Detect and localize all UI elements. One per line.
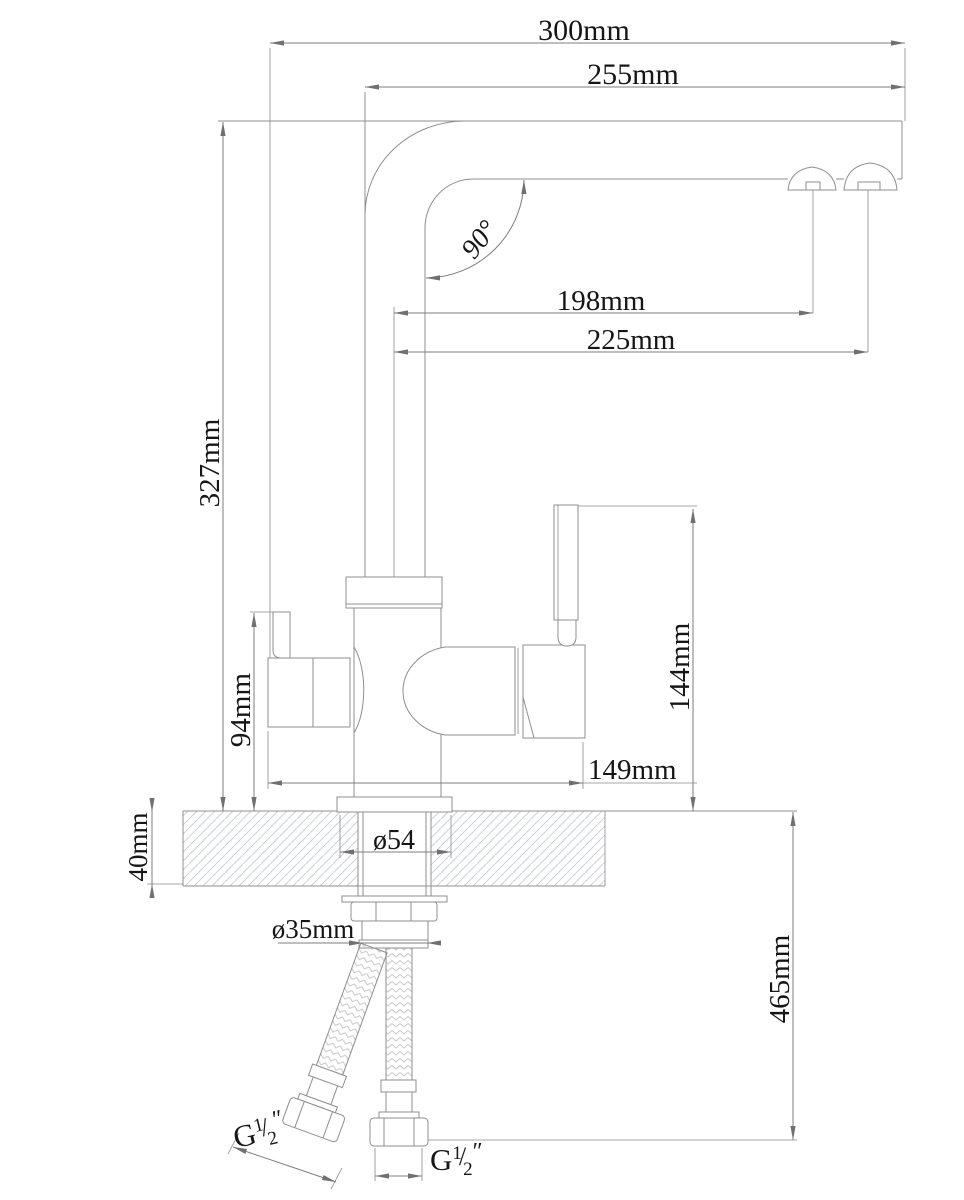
right-handle-neck: [558, 620, 576, 646]
right-handle-housing: [523, 645, 585, 738]
thread-right-inch: ″: [473, 1139, 483, 1165]
label-149mm: 149mm: [588, 754, 677, 786]
label-94mm: 94mm: [225, 673, 257, 748]
label-465mm: 465mm: [764, 934, 796, 1023]
label-thread-left: G1/2″: [229, 1105, 290, 1158]
label-dia35: ø35mm: [272, 914, 355, 944]
right-hose-tube: [386, 1092, 412, 1112]
mounting-nut: [351, 902, 437, 921]
aerator-far-outlet: [858, 182, 880, 190]
countertop-section: [183, 811, 797, 886]
countertop-hatch-right: [431, 811, 605, 886]
faucet-technical-drawing: 300mm 255mm 198mm 225mm 90° 327mm 94mm 1…: [0, 0, 964, 1200]
body-collar: [346, 577, 442, 608]
mounting-washer: [342, 896, 447, 902]
ext-line-thread-left-b: [331, 1168, 342, 1189]
label-thread-right: G1/2″: [430, 1139, 483, 1180]
label-dia54: ø54: [373, 825, 415, 856]
dimension-labels: 300mm 255mm 198mm 225mm 90° 327mm 94mm 1…: [123, 14, 796, 1180]
countertop-hatch-left: [183, 811, 358, 886]
label-327mm: 327mm: [194, 418, 226, 507]
aerator-near-outlet: [806, 182, 820, 190]
right-hose-nut: [370, 1118, 428, 1146]
left-handle-housing: [268, 658, 350, 727]
thread-right-sub: 2: [463, 1159, 473, 1180]
label-300mm: 300mm: [538, 14, 630, 47]
right-hose-washer: [379, 1112, 419, 1118]
label-255mm: 255mm: [587, 58, 679, 91]
label-40mm: 40mm: [123, 812, 153, 881]
supply-hoses: [282, 939, 428, 1146]
label-90deg: 90°: [455, 215, 504, 265]
body-waist-curve: [354, 647, 364, 733]
base-flange: [337, 797, 452, 812]
left-hose-braid: [316, 943, 387, 1075]
joint-cone: [403, 647, 515, 735]
thread-right-g: G: [430, 1142, 452, 1177]
label-225mm: 225mm: [587, 324, 676, 356]
right-hose-ferrule: [381, 1080, 416, 1092]
label-144mm: 144mm: [664, 622, 696, 711]
drawing-canvas: 300mm 255mm 198mm 225mm 90° 327mm 94mm 1…: [0, 0, 964, 1200]
left-handle-lever: [273, 612, 290, 658]
spout-outer-bend: [365, 121, 465, 215]
right-hose-braid: [386, 948, 412, 1080]
right-hose-assembly: [370, 948, 428, 1146]
label-198mm: 198mm: [557, 285, 646, 317]
